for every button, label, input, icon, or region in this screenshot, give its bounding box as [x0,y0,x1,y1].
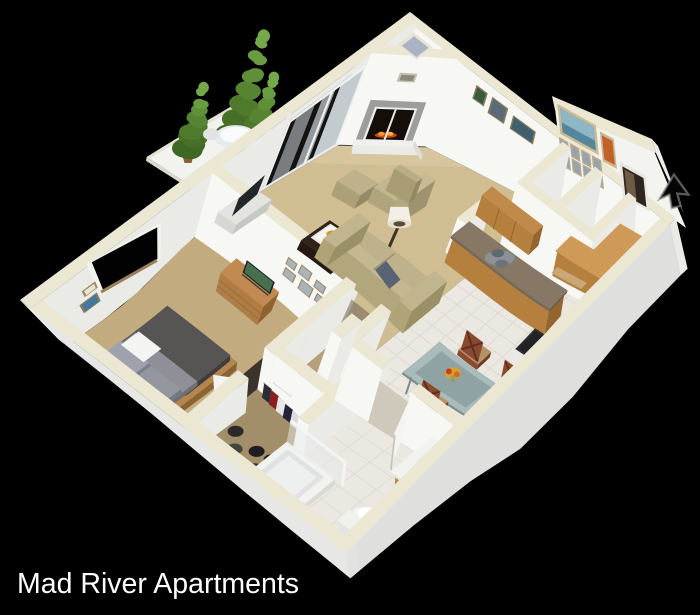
svg-text:Mad River Apartments: Mad River Apartments [17,568,299,600]
